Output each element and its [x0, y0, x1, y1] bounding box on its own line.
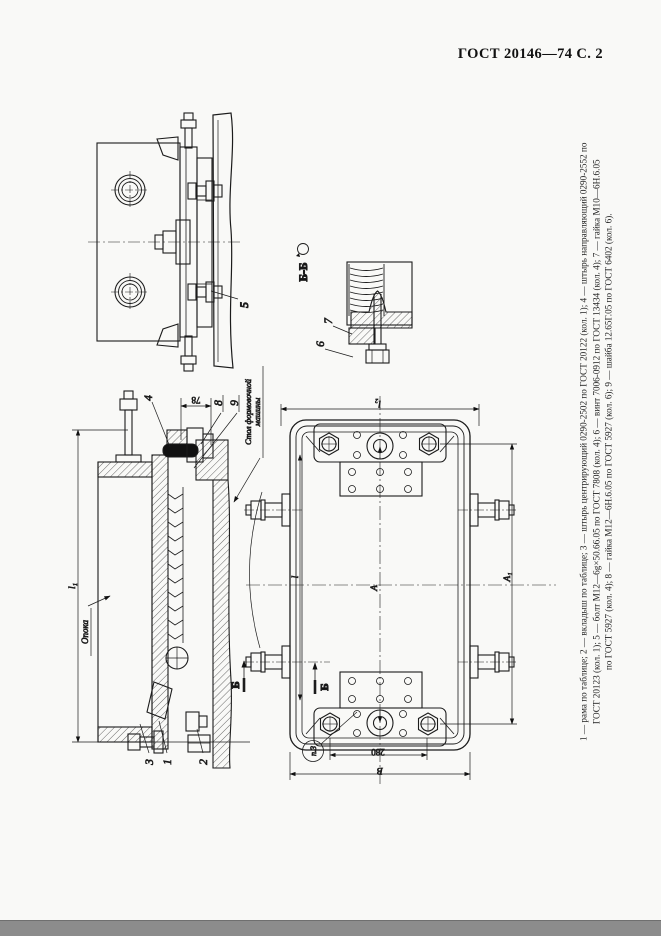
dim-A-label: А — [370, 585, 380, 592]
clamp-screw-lower — [188, 282, 222, 302]
label-machine-table: Стол формовочной машины — [234, 366, 263, 502]
dim-280: 280 — [330, 738, 427, 760]
view-side-elevation: 5 — [88, 113, 251, 371]
dim-l1-label: l₁ — [68, 583, 78, 589]
section-letter: Б — [230, 681, 242, 688]
svg-text:Стол формовочной: Стол формовочной — [244, 379, 253, 445]
dim-280-label: 280 — [371, 747, 385, 757]
dim-78-label: 78 — [191, 395, 201, 405]
view-cross-section: l₁ Опока — [68, 366, 263, 768]
callout-4: 4 — [143, 395, 155, 401]
threaded-stud — [168, 487, 183, 643]
parts-list-caption: 1 — рама по таблице; 2 — вкладыш по табл… — [577, 92, 615, 792]
section-letter: Б — [319, 683, 331, 690]
hex-bolt — [420, 433, 439, 455]
technical-drawing: 5 l₁ Опока — [0, 0, 661, 936]
callout-7: 7 — [323, 317, 335, 324]
svg-text:Опока: Опока — [80, 620, 90, 644]
bolt-hole-top — [111, 171, 149, 209]
dim-A: А — [370, 447, 380, 722]
guide-pin — [116, 391, 141, 462]
detail-title: Б-Б — [298, 262, 310, 281]
svg-text:машины: машины — [253, 397, 262, 427]
callout-8: 8 — [213, 400, 225, 406]
caption-line-1: 1 — рама по таблице; 2 — вкладыш по табл… — [577, 92, 590, 792]
caption-line-2: ГОСТ 20123 (кол. 1); 5 — болт М12—6g×50.… — [590, 92, 603, 792]
rotated-view-icon — [298, 244, 309, 255]
top-pad — [314, 424, 446, 496]
bolt-hole-bottom — [111, 273, 149, 311]
round-nut — [166, 647, 188, 669]
clamp-screw-upper — [188, 181, 222, 201]
callout-5: 5 — [239, 302, 251, 308]
centering-pin — [163, 444, 198, 457]
hex-bolt — [321, 713, 340, 735]
hex-bolt — [320, 433, 339, 455]
callout-9: 9 — [229, 400, 241, 406]
view-plan: l₂ — [230, 396, 556, 786]
dim-A1: А₁ — [440, 444, 517, 724]
callout-2: 2 — [198, 759, 210, 765]
dim-l-label: l — [291, 575, 301, 578]
caption-line-3: по ГОСТ 5927 (кол. 4); 8 — гайка М12—6Н.… — [602, 92, 615, 792]
hex-bolt — [419, 713, 438, 735]
dim-B-label: В — [377, 765, 383, 775]
callout-1: 1 — [162, 759, 174, 765]
scan-edge-strip — [0, 920, 661, 936]
callout-4-group: 4 — [143, 395, 170, 447]
balloon-text: п.3 — [309, 746, 318, 756]
view-detail-b-b: Б-Б 7 6 — [296, 244, 412, 364]
dim-A1-label: А₁ — [503, 572, 513, 582]
view-title: Б-Б — [296, 244, 310, 282]
callout-6: 6 — [315, 341, 327, 347]
callout-3: 3 — [144, 759, 156, 766]
label-opoka: Опока — [80, 596, 110, 656]
section-marks: Б Б — [230, 661, 331, 694]
